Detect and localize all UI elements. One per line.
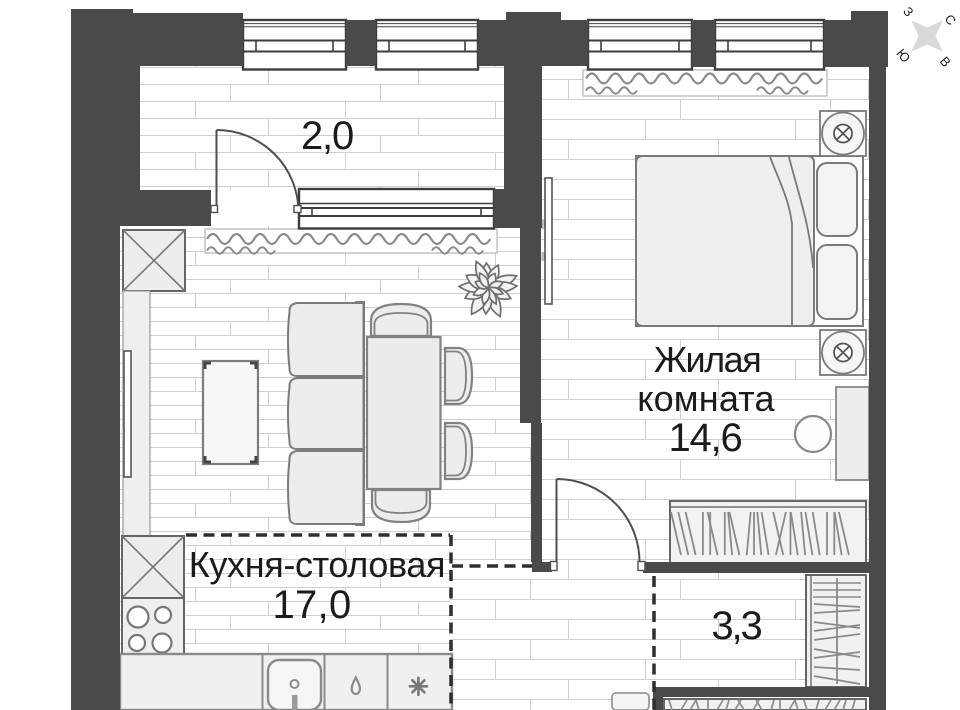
svg-text:14,6: 14,6 (668, 416, 741, 460)
svg-text:Жилая: Жилая (654, 339, 760, 380)
svg-text:Кухня-столовая: Кухня-столовая (189, 544, 445, 585)
svg-text:комната: комната (637, 378, 775, 419)
svg-text:3,3: 3,3 (711, 604, 761, 648)
svg-text:2,0: 2,0 (301, 114, 353, 158)
svg-text:17,0: 17,0 (272, 583, 351, 627)
